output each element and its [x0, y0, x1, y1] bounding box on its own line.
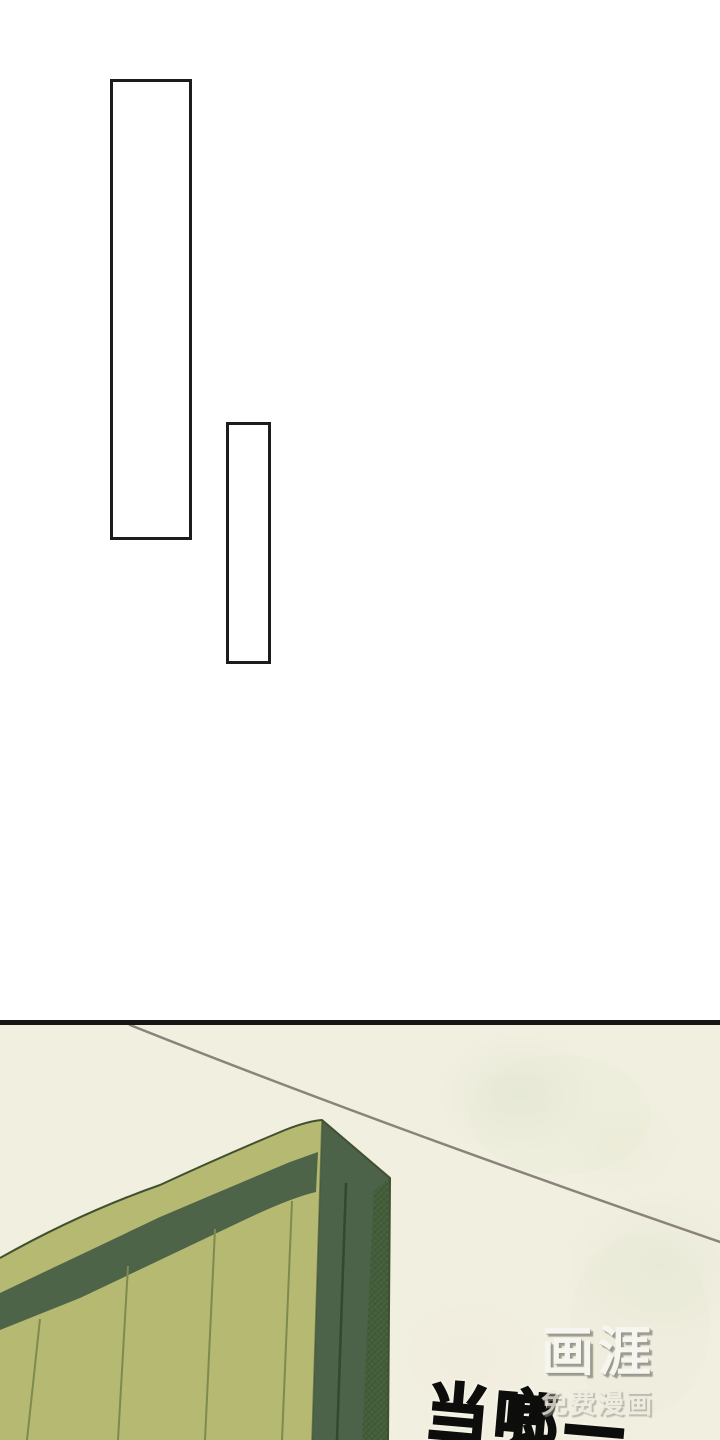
background-tint-blob: [470, 1055, 650, 1175]
comic-panel: 当啷— 画涯 免费漫画: [0, 1025, 720, 1440]
top-white-section: [0, 0, 720, 1020]
speech-bubble-1: [110, 79, 192, 540]
comic-page: 当啷— 画涯 免费漫画: [0, 0, 720, 1440]
speech-bubble-2: [226, 422, 271, 664]
gate-illustration: [0, 1025, 720, 1440]
background-tint-blob: [570, 1235, 710, 1415]
